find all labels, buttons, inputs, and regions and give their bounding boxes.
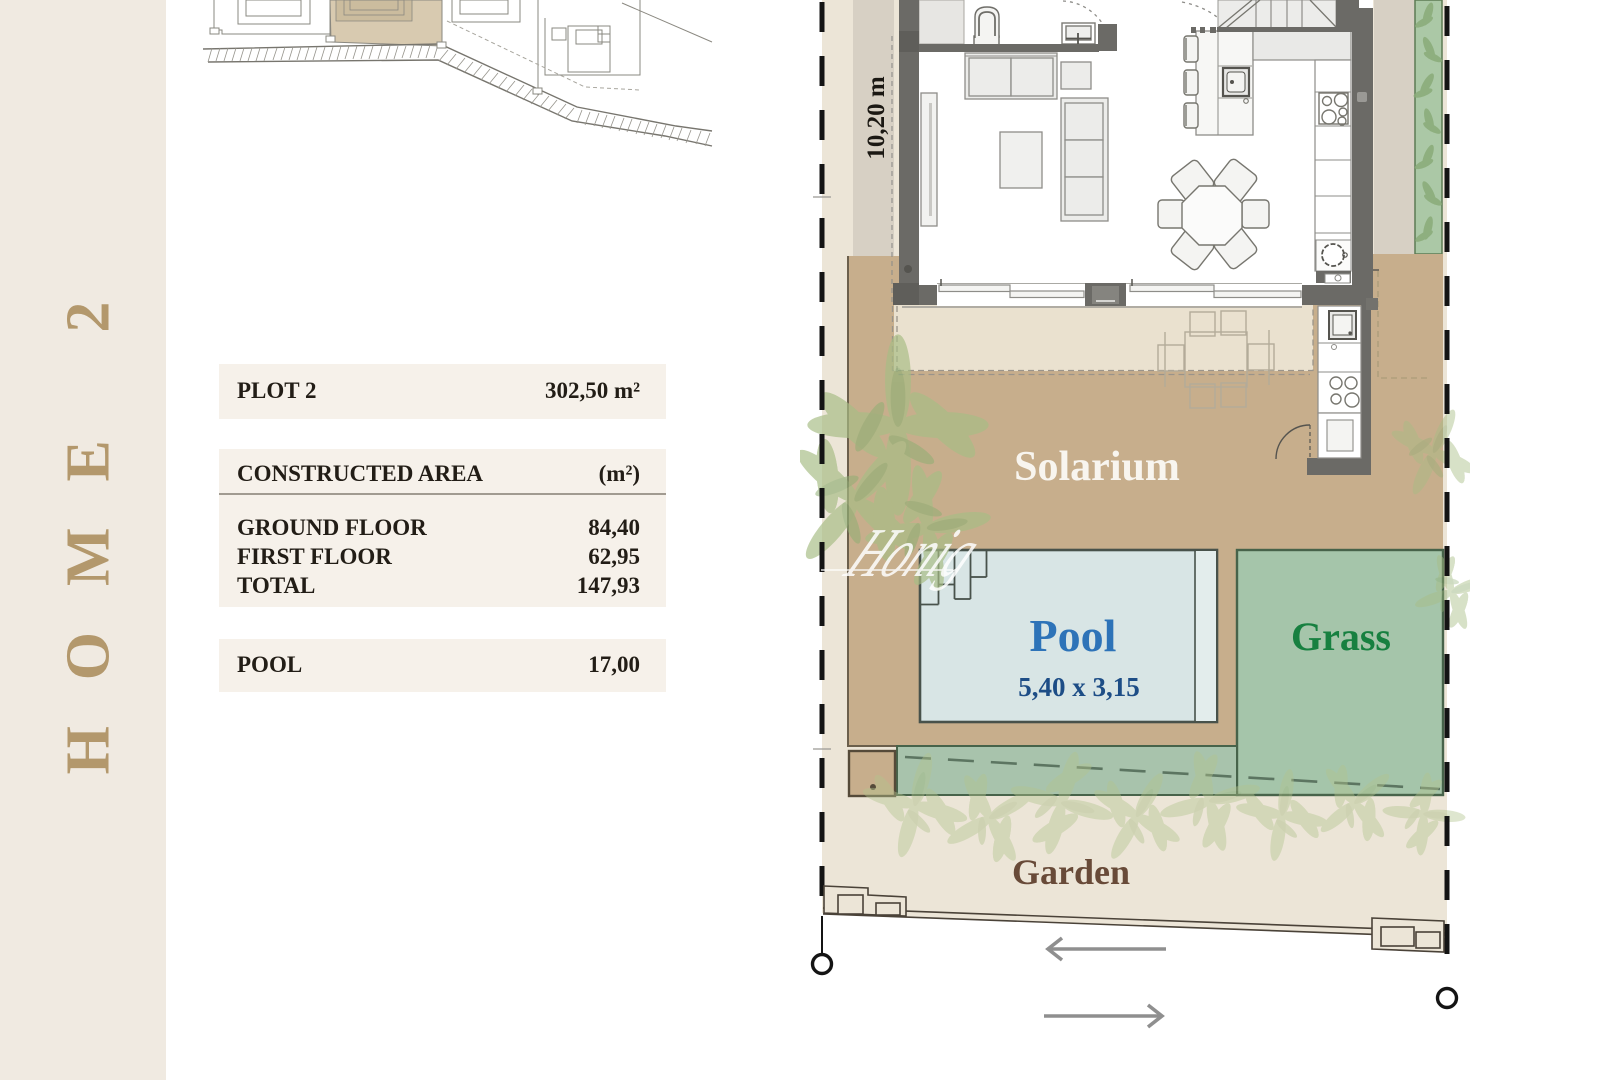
svg-text:Pool: Pool: [1030, 610, 1117, 661]
svg-text:Solarium: Solarium: [1014, 444, 1180, 490]
svg-text:5,40 x 3,15: 5,40 x 3,15: [1018, 672, 1140, 702]
svg-text:10,20 m: 10,20 m: [863, 76, 890, 160]
svg-text:Grass: Grass: [1291, 614, 1391, 659]
